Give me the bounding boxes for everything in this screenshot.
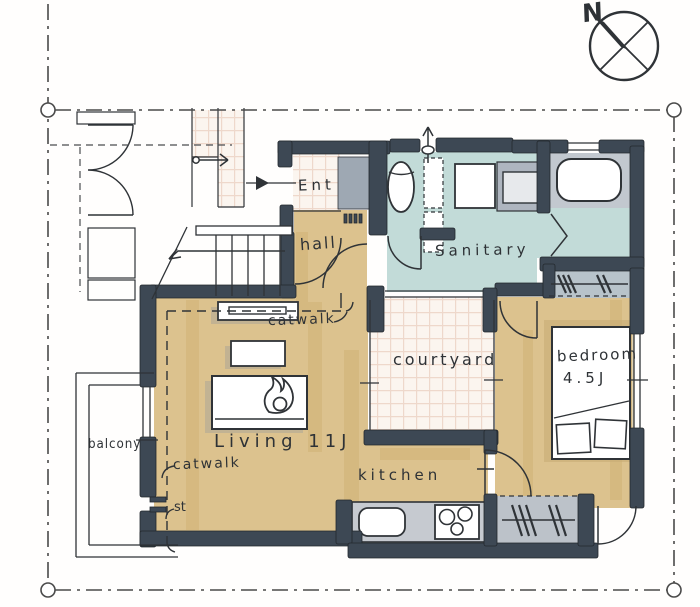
floor-plan: N Ent hall Sanitary courtyard bedroom 4.…	[0, 0, 700, 607]
table-icon	[231, 341, 285, 366]
bathtub-icon	[557, 159, 621, 201]
wood-stove-icon	[212, 376, 307, 429]
roof-dashed-outline	[50, 145, 232, 292]
room-label-sanitary: Sanitary	[435, 242, 530, 259]
shoe-cabinet-icon	[338, 157, 372, 209]
annotation-st: st	[174, 501, 186, 514]
cooktop-icon	[435, 505, 479, 539]
room-label-courtyard: courtyard	[393, 352, 497, 368]
room-label-bedroom: bedroom	[557, 347, 639, 365]
north-label: N	[582, 0, 604, 27]
closet-upper-floor	[547, 268, 630, 298]
room-label-living: Living 11J	[214, 433, 351, 451]
toilet-icon	[388, 162, 414, 212]
floor-plan-drawing	[0, 0, 700, 607]
annotation-catwalk-upper: catwalk	[268, 312, 336, 328]
washbasin-icon	[455, 164, 495, 208]
kitchen-counter	[352, 502, 487, 542]
room-size-bedroom: 4.5J	[563, 371, 607, 386]
sink-icon	[359, 508, 405, 536]
room-label-balcony: balcony	[88, 438, 141, 451]
entry-arrow-icon	[246, 176, 296, 190]
annotation-catwalk-lower: catwalk	[173, 456, 241, 472]
room-label-hall: hall	[299, 235, 337, 254]
room-label-kitchen: kitchen	[358, 468, 441, 483]
room-label-ent: Ent	[298, 177, 335, 193]
